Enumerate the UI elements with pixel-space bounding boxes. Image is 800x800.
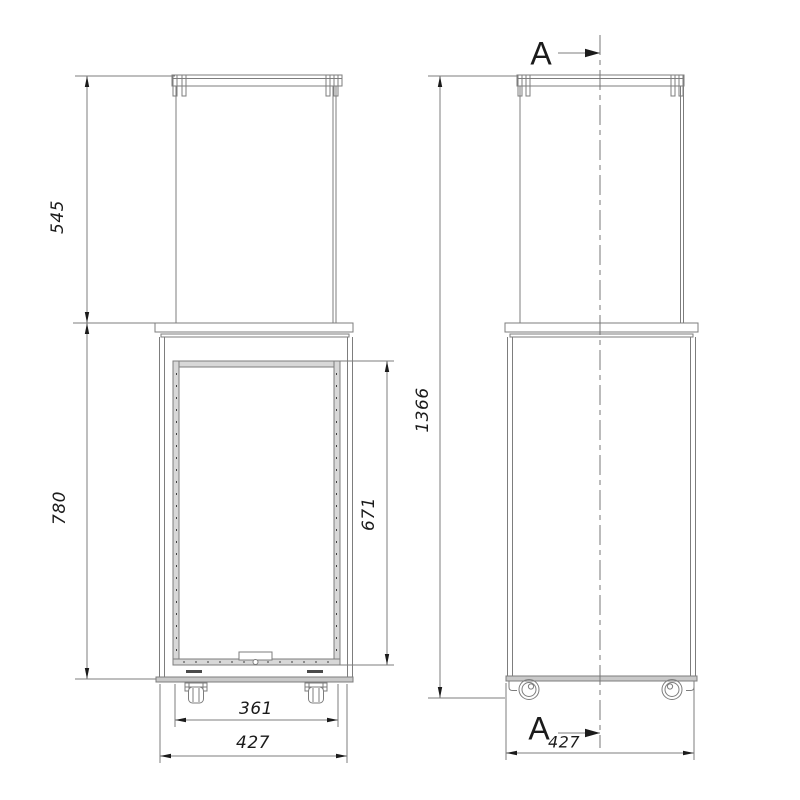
front-casing <box>155 323 353 682</box>
technical-drawing-canvas: 545 780 671 361 427 1366 A A 427 <box>0 0 800 800</box>
dim-780-linework <box>75 323 156 679</box>
front-top-cap <box>172 75 342 96</box>
front-glass-tube <box>176 86 336 323</box>
drawing-linework <box>0 0 800 800</box>
side-view <box>505 75 698 700</box>
dim-side-depth: 427 <box>548 733 580 752</box>
dim-1366-linework <box>428 76 517 698</box>
side-glass-tube <box>520 86 684 323</box>
side-caster-right <box>662 680 694 700</box>
side-caster-left <box>509 680 539 700</box>
front-caster-right <box>305 683 327 703</box>
front-vent-slots <box>186 670 323 673</box>
front-window-frame <box>173 361 340 665</box>
door-latch-pin <box>253 660 258 665</box>
front-view <box>155 75 353 703</box>
dim-front-outer-width: 427 <box>236 733 270 753</box>
dim-side-total-height: 1366 <box>413 387 433 432</box>
dimension-lines <box>73 53 694 763</box>
section-label-bottom: A <box>528 711 549 748</box>
side-casing <box>505 323 698 681</box>
dim-front-inner-width: 361 <box>239 699 273 719</box>
dim-front-body-height: 780 <box>50 491 70 525</box>
dim-545-linework <box>73 76 175 323</box>
section-label-top: A <box>530 36 551 73</box>
section-arrowhead-bottom <box>585 729 600 737</box>
frame-hidden-dotted-lines <box>177 373 337 662</box>
dim-front-glass-height: 545 <box>48 200 68 234</box>
door-latch-tab <box>239 652 272 660</box>
front-caster-left <box>185 683 207 703</box>
dim-front-window-height: 671 <box>359 497 379 531</box>
section-arrowhead-top <box>585 49 600 57</box>
